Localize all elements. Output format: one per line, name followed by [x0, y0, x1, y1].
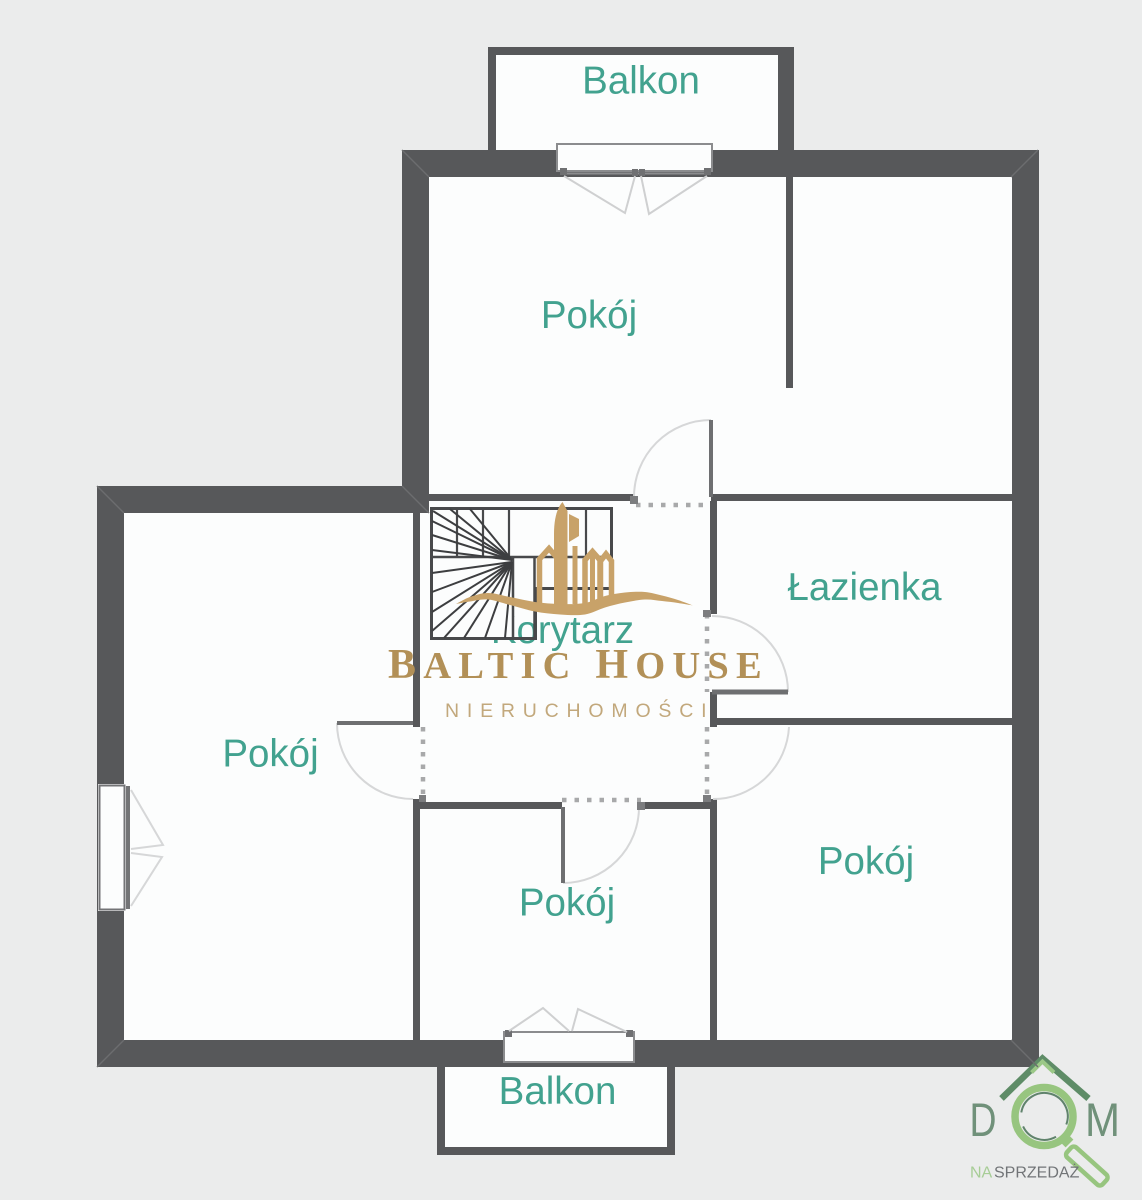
svg-text:BALTIC HOUSE: BALTIC HOUSE [388, 642, 769, 688]
svg-text:D: D [970, 1093, 997, 1146]
svg-text:NIERUCHOMOŚCI: NIERUCHOMOŚCI [445, 698, 714, 722]
svg-text:Pokój: Pokój [818, 840, 914, 883]
svg-text:Pokój: Pokój [222, 733, 318, 776]
svg-text:Balkon: Balkon [499, 1070, 617, 1113]
svg-text:NA: NA [970, 1165, 993, 1182]
svg-text:Pokój: Pokój [519, 882, 615, 925]
svg-text:Pokój: Pokój [541, 294, 637, 337]
svg-text:M: M [1085, 1093, 1120, 1146]
svg-text:SPRZEDAŻ: SPRZEDAŻ [994, 1163, 1080, 1182]
svg-text:Łazienka: Łazienka [787, 566, 942, 609]
svg-text:Balkon: Balkon [582, 60, 700, 103]
